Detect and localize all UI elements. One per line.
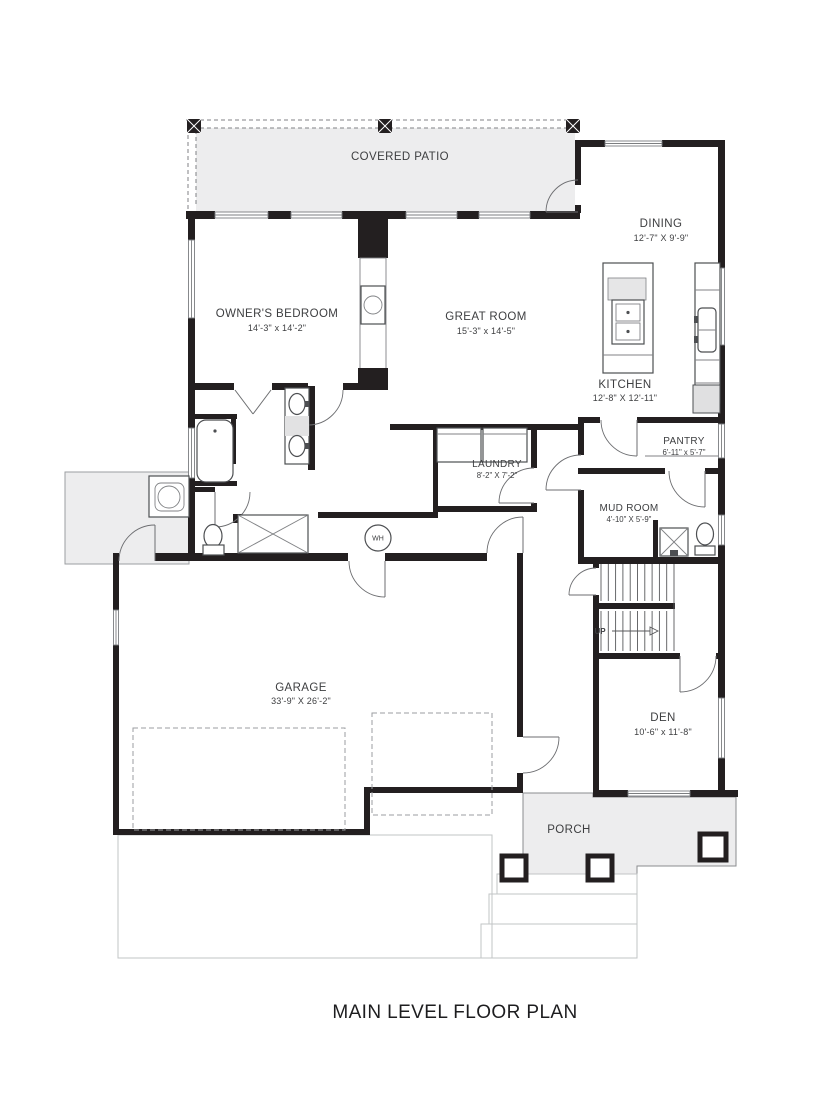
window-icon (719, 424, 725, 458)
room-label-great-room: GREAT ROOM (445, 311, 527, 323)
room-label-garage: GARAGE (275, 682, 327, 694)
stairs-up-label: UP (594, 627, 606, 636)
utility-sink-icon (660, 528, 688, 556)
window-icon (406, 212, 457, 218)
window-icon (291, 212, 342, 218)
window-icon (719, 515, 725, 545)
water-heater-icon: WH (365, 525, 391, 551)
kitchen-island (603, 263, 653, 373)
room-label-kitchen: KITCHEN (598, 379, 651, 391)
up-arrow-icon (612, 627, 658, 635)
floor-plan-page: WH (0, 0, 838, 1105)
room-label-mud-room: MUD ROOM (599, 503, 658, 514)
window-icon (215, 212, 268, 218)
porch-step-3 (481, 924, 637, 958)
room-dims-garage: 33'-9" X 26'-2" (271, 696, 331, 706)
door-icon (546, 455, 581, 490)
room-dims-laundry: 8'-2" X 7'-2" (477, 471, 518, 480)
door-icon (487, 517, 523, 553)
door-icon (680, 656, 716, 692)
double-door-icon (235, 390, 271, 414)
room-dims-pantry: 6'-11" x 5'-7" (662, 448, 705, 457)
room-dims-den: 10'-6" x 11'-8" (634, 727, 692, 737)
porch-column-icon (588, 856, 612, 880)
door-icon (601, 420, 637, 456)
vanity-sinks-icon (285, 388, 309, 464)
kitchen-counter (693, 263, 720, 413)
porch-column-icon (502, 856, 526, 880)
room-label-pantry: PANTRY (663, 436, 704, 447)
shower-icon (238, 515, 308, 553)
room-label-den: DEN (650, 712, 675, 724)
driveway-outline (118, 835, 492, 958)
window-icon (605, 141, 662, 146)
room-labels: COVERED PATIO DINING 12'-7" X 9'-9" OWNE… (216, 151, 706, 836)
room-dims-owners-bedroom: 14'-3" x 14'-2" (248, 323, 306, 333)
porch-step-2 (489, 894, 637, 924)
toilet-icon (203, 525, 224, 556)
page-title: MAIN LEVEL FLOOR PLAN (332, 1002, 577, 1023)
cooktop-icon (612, 300, 644, 344)
patio-post-icon (187, 119, 201, 133)
window-icon (628, 791, 690, 796)
door-icon (349, 561, 385, 597)
room-label-covered-patio: COVERED PATIO (351, 151, 449, 163)
water-heater-label: WH (372, 536, 384, 543)
room-dims-great-room: 15'-3" x 14'-5" (457, 326, 515, 336)
refrigerator-icon (693, 385, 720, 413)
covered-patio-slab (196, 128, 575, 213)
patio-post-icon (378, 119, 392, 133)
dryer-icon (483, 428, 527, 462)
room-label-laundry: LAUNDRY (472, 459, 522, 470)
bathtub-icon (197, 420, 233, 482)
door-icon (569, 568, 596, 595)
window-icon (719, 698, 725, 758)
outdoor-fireplace-icon (149, 476, 189, 517)
door-icon (523, 737, 559, 773)
patio-post-icon (566, 119, 580, 133)
window-icon (189, 240, 195, 318)
window-icon (479, 212, 530, 218)
room-dims-mud-room: 4'-10" X 5'-9" (607, 515, 652, 524)
room-label-owners-bedroom: OWNER'S BEDROOM (216, 308, 339, 320)
room-dims-dining: 12'-7" X 9'-9" (634, 233, 689, 243)
washer-icon (437, 428, 481, 462)
room-label-porch: PORCH (547, 824, 591, 836)
garage-bay-outline (133, 728, 345, 830)
room-label-dining: DINING (640, 218, 683, 230)
fireplace-icon (361, 286, 385, 324)
window-icon (189, 428, 195, 478)
powder-toilet-icon (695, 523, 715, 555)
room-dims-kitchen: 12'-8" X 12'-11" (593, 393, 657, 403)
porch-column-icon (700, 834, 726, 860)
door-icon (669, 471, 705, 507)
garage-bay-outline (372, 713, 492, 815)
window-icon (114, 610, 119, 645)
floor-plan-drawing: WH (0, 0, 838, 1105)
